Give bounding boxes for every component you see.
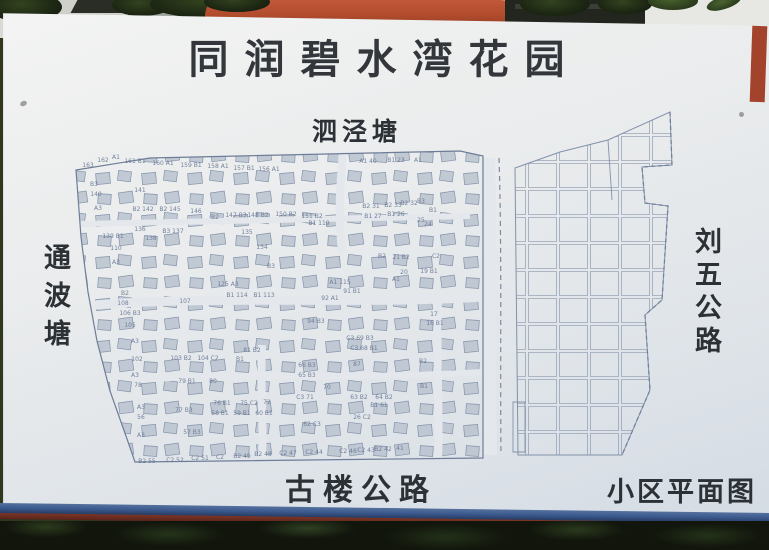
plot-label: 157 B1 (233, 165, 254, 172)
plot-label: 64 B2 (375, 394, 393, 401)
plot-label: 72 (263, 399, 271, 406)
plot-label: 105 (124, 322, 136, 329)
plot-label: C2 43 (357, 447, 375, 454)
red-post (750, 26, 768, 102)
plot-label: 103 B2 (170, 355, 191, 362)
plot-label: B1 (236, 356, 244, 363)
plot-label: B3 137 (162, 228, 183, 235)
plot-label: 107 (179, 298, 191, 305)
plot-label: B2 48 (254, 451, 272, 458)
plot-label: 108 (117, 300, 129, 307)
plot-label: 91 B1 (343, 288, 361, 295)
plot-label: B2 55 (138, 458, 156, 465)
plot-label: 70 (323, 384, 331, 391)
plot-label: 156 A1 (258, 166, 279, 173)
plot-label: C2 (432, 253, 440, 260)
plot-label: C3 69 B3 (346, 335, 374, 342)
plot-label: B1 119 (308, 220, 329, 227)
plot-label: 17 (430, 311, 438, 318)
plot-label: B2 (419, 358, 427, 365)
plot-label: C3 68 B1 (350, 345, 378, 352)
plot-label: B2 (211, 214, 219, 221)
plot-label: B2 49 (233, 453, 251, 460)
plot-label: 139 B1 (102, 233, 123, 240)
plot-label: 81 B2 (243, 347, 261, 354)
plot-label: B1 26 (387, 211, 405, 218)
plot-label: 106 B3 (119, 310, 140, 317)
plot-label: 148 B2 (247, 212, 268, 219)
plot-label: B3 (267, 263, 275, 270)
road-label-east: 刘五公路 (687, 227, 726, 359)
plot-label: 150 B2 (275, 211, 296, 218)
plot-label: 125 A3 (217, 281, 238, 288)
plot-label: C2 51 (191, 455, 209, 462)
plot-label: 76 B1 (213, 400, 231, 407)
plot-label: C2 44 (305, 449, 323, 456)
plot-label: B2 145 (159, 206, 180, 213)
plot-label: 60 B1 (255, 410, 273, 417)
plot-label: B3 (90, 181, 98, 188)
plot-label: 102 (131, 356, 143, 363)
plot-label: A3 (137, 432, 145, 439)
smudge-mark (19, 100, 27, 107)
plot-label: 79 B1 (178, 378, 196, 385)
plot-label: C2 46 (339, 448, 357, 455)
plot-label: 162 (97, 157, 109, 164)
plot-label: A1 (112, 154, 120, 161)
plot-label: B3 (417, 198, 425, 205)
plot-label: C2 (216, 454, 224, 461)
plot-label: C2 52 (166, 457, 184, 464)
plot-label: A3 (112, 259, 120, 266)
plot-label: 59 B1 (233, 410, 251, 417)
plot-label: A1 115 (329, 279, 350, 286)
plot-label: 141 (134, 187, 146, 194)
plot-label: 110 (110, 245, 122, 252)
plot-label: 26 C2 (353, 414, 371, 421)
plot-label: A1 40 (359, 158, 377, 165)
plot-label: 80 (209, 378, 217, 385)
plot-label: 66 B3 (298, 362, 316, 369)
plot-label: 151 B2 (301, 213, 322, 220)
plot-label: 57 B3 (183, 429, 201, 436)
plot-label: 20 (400, 269, 408, 276)
plot-label: B2 142 (132, 206, 153, 213)
plot-label: 140 (90, 191, 102, 198)
foreground-foliage (0, 521, 769, 550)
plot-label: B2 31 (362, 203, 380, 210)
plot-label: 161 B1 (124, 158, 145, 165)
plot-label: A1 (414, 157, 422, 164)
plot-label: 41 (396, 445, 404, 452)
plot-label: 147 B3 (225, 212, 246, 219)
plot-label: A3 (94, 205, 102, 212)
plot-label: B1 27 (364, 213, 382, 220)
plot-label: B2 (378, 253, 386, 260)
plot-label: 24 (424, 221, 432, 228)
plot-label: 136 (134, 226, 146, 233)
plot-label: B1 (420, 383, 428, 390)
plot-label: B1 (429, 207, 437, 214)
plot-label: B1 61 (370, 402, 388, 409)
plot-label: C2 47 (279, 450, 297, 457)
smudge-mark (739, 112, 744, 117)
plot-label: 92 A1 (321, 295, 339, 302)
plot-label: A3 (131, 338, 139, 345)
plot-label: 160 A1 (152, 160, 173, 167)
plot-label: 138 (145, 235, 157, 242)
plot-label: 21 B2 (392, 254, 410, 261)
plot-label: 19 B1 (420, 268, 438, 275)
plot-label: B2 (121, 290, 129, 297)
plot-label: B1 113 (253, 292, 274, 299)
dashed-road-divider (499, 158, 501, 455)
plot-label: 134 (256, 244, 268, 251)
plot-label: 77 B3 (175, 407, 193, 414)
plot-label: 63 B2 (350, 394, 368, 401)
plot-label: 56 (137, 414, 145, 421)
plot-label: A3 (137, 404, 145, 411)
plot-label: 146 (190, 208, 202, 215)
plot-label: B1 23 (387, 157, 405, 164)
site-plan-drawing: 163162A1161 B1160 A1159 B1158 A1157 B115… (58, 98, 680, 470)
plot-label: 87 (353, 361, 361, 368)
sign-board: 同润碧水湾花园 泗泾塘 通波塘 刘五公路 古楼公路 小区平面图 (0, 0, 769, 550)
plot-label: 16 B1 (426, 320, 444, 327)
sign-title: 同润碧水湾花园 (189, 27, 581, 85)
plot-label: B1 114 (226, 292, 247, 299)
plot-label: B2 32 (400, 200, 418, 207)
plot-label: 78 (134, 382, 142, 389)
photo-of-community-plan-sign: 同润碧水湾花园 泗泾塘 通波塘 刘五公路 古楼公路 小区平面图 (0, 0, 769, 550)
east-parcel-lots (515, 112, 672, 455)
plot-label: 163 (82, 162, 94, 169)
plot-label: 158 A1 (207, 163, 228, 170)
plot-label: A3 (131, 372, 139, 379)
plot-label: A1 (392, 276, 400, 283)
plot-label: 104 C2 (197, 355, 219, 362)
plot-label: 62 C3 (303, 421, 321, 428)
road-label-south: 古楼公路 (285, 465, 437, 509)
plot-label: C3 71 (296, 394, 314, 401)
sign-caption: 小区平面图 (607, 470, 757, 509)
plot-label: 65 B3 (298, 372, 316, 379)
plot-label: 58 B1 (211, 410, 229, 417)
plot-label: B2 42 (374, 446, 392, 453)
plot-label: 159 B1 (180, 162, 201, 169)
plot-label: 94 B3 (307, 318, 325, 325)
plot-label: 75 C2 (240, 400, 258, 407)
plot-label: 135 (241, 229, 253, 236)
